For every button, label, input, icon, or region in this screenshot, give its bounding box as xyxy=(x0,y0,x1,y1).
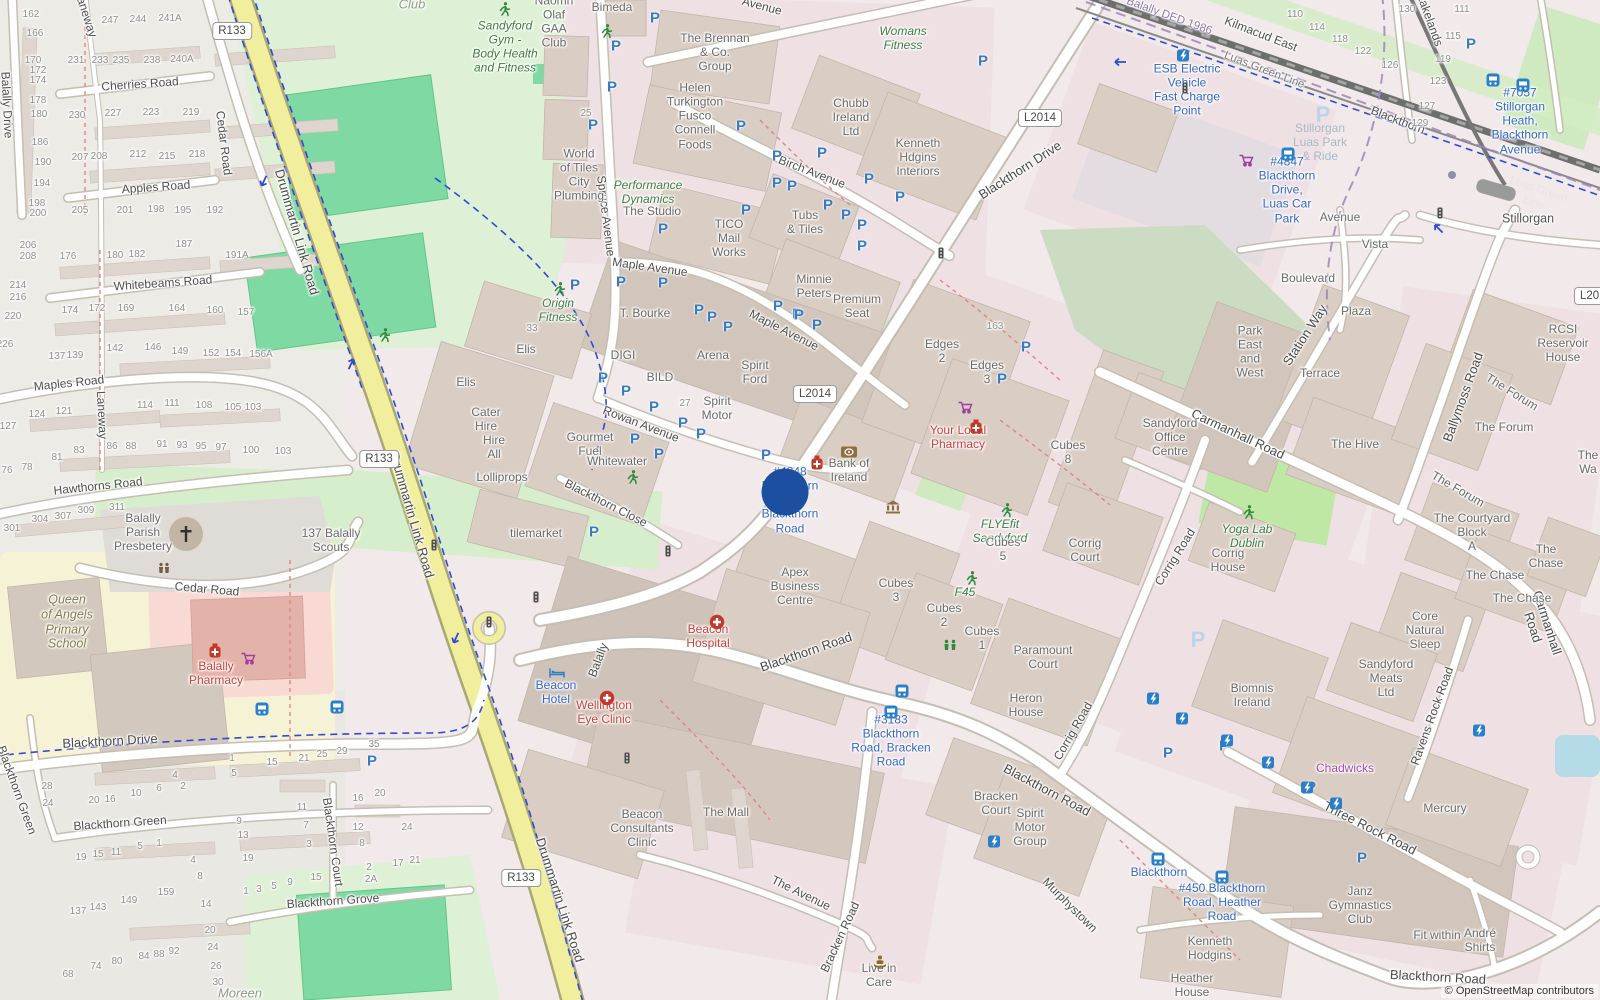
housenumber-198: 198 xyxy=(148,204,165,216)
map-label-arena: Arena xyxy=(697,348,729,362)
map-label-andr-shirts: André Shirts xyxy=(1464,926,1496,954)
housenumber-111: 111 xyxy=(164,398,179,410)
cart-icon xyxy=(1239,154,1254,167)
housenumber-160: 160 xyxy=(207,305,224,317)
map-label-ballymoss-road: Ballymoss Road xyxy=(1440,350,1487,444)
map-label-the-courtyard-block-a: The Courtyard Block A xyxy=(1434,511,1511,553)
housenumber-92: 92 xyxy=(168,946,179,958)
selected-stop-marker[interactable] xyxy=(762,469,809,516)
map-label-maple-avenue: Maple Avenue xyxy=(747,306,821,353)
parking-icon: P xyxy=(707,310,717,325)
bus-icon xyxy=(1216,871,1229,884)
parking-icon: P xyxy=(857,218,867,233)
map-label-blackthorn-drive: Blackthorn Drive xyxy=(62,731,158,751)
parking-icon: P xyxy=(367,754,377,769)
housenumber-241a: 241A xyxy=(158,13,181,25)
map-label-hire-all: Hire All xyxy=(483,433,505,461)
housenumber-198: 198 xyxy=(29,198,46,210)
housenumber-16: 16 xyxy=(104,794,115,806)
map-label-balally-drive: Balally Drive xyxy=(0,71,16,138)
ev-icon xyxy=(1330,797,1342,810)
housenumber-29: 29 xyxy=(336,746,347,758)
map-label-t-bourke: T. Bourke xyxy=(620,306,671,320)
housenumber-220: 220 xyxy=(5,311,22,323)
parking-icon: P xyxy=(658,276,668,291)
housenumber-180: 180 xyxy=(31,109,48,121)
housenumber-108: 108 xyxy=(196,400,213,412)
housenumber-12: 12 xyxy=(352,822,363,834)
map-label-world-of-tiles-city-plumbing: World of Tiles City Plumbing xyxy=(554,147,604,204)
runner-icon xyxy=(378,328,390,343)
housenumber-8: 8 xyxy=(359,838,365,850)
housenumber-9: 9 xyxy=(236,816,242,828)
housenumber-11: 11 xyxy=(297,802,307,814)
bus-icon xyxy=(1282,148,1295,161)
parking-icon: P xyxy=(654,447,664,462)
map-canvas[interactable]: Cherries RoadApples RoadWhitebeams RoadM… xyxy=(0,0,1600,1000)
map-label-rowan-avenue: Rowan Avenue xyxy=(601,403,681,445)
map-label-birch-avenue: Birch Avenue xyxy=(777,153,848,191)
map-label-the-avenue: The Avenue xyxy=(769,873,833,914)
housenumber-15: 15 xyxy=(266,757,277,769)
housenumber-166: 166 xyxy=(27,28,44,40)
map-label-plaza: Plaza xyxy=(1341,304,1371,318)
map-label-luas-green-line: Luas Green Line xyxy=(1222,49,1306,92)
parking-icon: P xyxy=(611,39,621,54)
map-label-the-chase: The Chase xyxy=(1519,542,1573,570)
parking-icon: P xyxy=(772,149,782,164)
map-label-3183-blackthorn-road-bracken-road: #3183 Blackthorn Road, Bracken Road xyxy=(851,713,930,770)
ev-icon xyxy=(1147,692,1159,705)
parking-icon: P xyxy=(792,307,802,322)
map-label-moreen: Moreen xyxy=(218,985,262,1000)
housenumber-227: 227 xyxy=(105,108,122,120)
housenumber-3: 3 xyxy=(256,884,262,896)
map-label-flyefit-sandyford: FLYEfit Sandyford xyxy=(973,517,1028,545)
housenumber-76: 76 xyxy=(1,465,12,477)
runner-icon xyxy=(600,24,612,39)
housenumber-223: 223 xyxy=(143,107,160,119)
housenumber-240a: 240A xyxy=(170,54,193,66)
care-icon xyxy=(873,954,887,968)
map-label-laneway: Laneway xyxy=(94,391,111,440)
parkingBig-icon: P xyxy=(1191,629,1206,651)
housenumber-127: 127 xyxy=(0,421,16,433)
map-label-blackthorn-court: Blackthorn Court xyxy=(320,797,346,887)
parking-icon: P xyxy=(696,427,706,442)
parkingBig-icon: P xyxy=(1316,104,1331,126)
parking-icon: P xyxy=(817,146,827,161)
map-label-three-rock-road: Three Rock Road xyxy=(1321,798,1419,858)
parking-icon: P xyxy=(761,448,771,463)
housenumber-169: 169 xyxy=(118,303,135,315)
housenumber-5: 5 xyxy=(231,768,237,780)
housenumber-127: 127 xyxy=(1419,101,1436,113)
housenumber-190: 190 xyxy=(35,157,52,169)
map-label-beacon-hospital: Beacon Hospital xyxy=(686,622,729,650)
housenumber-80: 80 xyxy=(111,956,122,968)
housenumber-176: 176 xyxy=(60,251,77,263)
traffic-icon xyxy=(666,546,671,557)
housenumber-81: 81 xyxy=(51,452,62,464)
runner-icon xyxy=(1242,505,1254,520)
map-label-the-mall: The Mall xyxy=(703,805,749,819)
housenumber-186: 186 xyxy=(32,137,49,149)
map-label-club: Club xyxy=(399,0,426,12)
map-label-elis: Elis xyxy=(456,375,475,389)
map-label-terrace: Terrace xyxy=(1300,366,1340,380)
map-label-tubs-tiles: Tubs & Tiles xyxy=(787,208,823,236)
map-label-digi: DIGI xyxy=(611,348,636,362)
map-label-the-brennan-co-group: The Brennan & Co. Group xyxy=(680,31,749,73)
map-label-kilmacud-east: Kilmacud East xyxy=(1223,14,1300,55)
map-label-naomh-olaf-gaa-club: Naomh Olaf GAA Club xyxy=(535,0,574,50)
map-label-your-local-pharmacy: Your Local Pharmacy xyxy=(930,423,986,451)
map-label-avenue: Avenue xyxy=(1320,210,1360,224)
housenumber-206: 206 xyxy=(20,240,37,252)
housenumber-119: 119 xyxy=(1435,54,1451,66)
runner-icon xyxy=(965,571,977,586)
parking-icon: P xyxy=(694,303,704,318)
church-icon xyxy=(180,526,193,542)
housenumber-68: 68 xyxy=(62,969,73,981)
parking-icon: P xyxy=(589,525,599,540)
hospital-icon xyxy=(710,615,725,630)
map-label-7057-stillorgan-heath-blackthorn-avenue: #7057 Stillorgan Heath, Blackthorn Avenu… xyxy=(1492,86,1549,157)
map-label-spirit-motor: Spirit Motor xyxy=(702,394,733,422)
map-label-cherries-road: Cherries Road xyxy=(101,74,179,94)
housenumber-137: 137 xyxy=(70,906,87,918)
traffic-icon xyxy=(1438,208,1443,219)
map-label-lolliprops: Lolliprops xyxy=(476,470,527,484)
housenumber-114: 114 xyxy=(137,400,153,412)
map-label-whitebeams-road: Whitebeams Road xyxy=(113,272,212,293)
housenumber-115: 115 xyxy=(1445,31,1461,43)
housenumber-172: 172 xyxy=(30,65,47,77)
housenumber-208: 208 xyxy=(91,151,108,163)
housenumber-20: 20 xyxy=(204,925,215,937)
housenumber-162: 162 xyxy=(23,9,40,21)
map-label-cubes-2: Cubes 2 xyxy=(927,601,962,629)
parking-icon: P xyxy=(1466,37,1476,52)
parking-icon: P xyxy=(570,278,580,293)
housenumber-149: 149 xyxy=(172,346,189,358)
parking-icon: P xyxy=(841,208,851,223)
map-label-wellington-eye-clinic: Wellington Eye Clinic xyxy=(576,698,632,726)
housenumber-15: 15 xyxy=(92,849,103,861)
housenumber-11: 11 xyxy=(111,847,121,859)
housenumber-84: 84 xyxy=(138,951,149,963)
map-label-elis: Elis xyxy=(516,342,535,356)
map-label-chadwicks: Chadwicks xyxy=(1316,761,1374,775)
housenumber-187: 187 xyxy=(176,239,193,251)
housenumber-178: 178 xyxy=(30,95,47,107)
ev-icon xyxy=(1221,734,1233,747)
housenumber-307: 307 xyxy=(55,511,72,523)
bus-icon xyxy=(256,703,269,716)
map-label-spirit-ford: Spirit Ford xyxy=(741,358,768,386)
parking-icon: P xyxy=(616,275,626,290)
parking-icon: P xyxy=(864,172,874,187)
road-ref-badge-l2014: L2014 xyxy=(1574,287,1600,305)
map-label-carmanhall-road: Carmanhall Road xyxy=(1189,406,1287,463)
ev-icon xyxy=(1176,712,1188,725)
scouts-icon xyxy=(157,563,171,574)
housenumber-194: 194 xyxy=(34,178,51,190)
housenumber-15: 15 xyxy=(310,872,321,884)
pharmacy-icon xyxy=(209,644,222,659)
housenumber-78: 78 xyxy=(21,462,32,474)
map-label-blackthorn-drive: Blackthorn Drive xyxy=(976,138,1064,203)
housenumber-86: 86 xyxy=(106,441,117,453)
map-label-blackthorn-grove: Blackthorn Grove xyxy=(286,891,379,912)
ev-icon xyxy=(1177,49,1189,62)
ev-icon xyxy=(1473,724,1485,737)
traffic-icon xyxy=(1183,83,1188,94)
bed-icon xyxy=(549,668,565,679)
housenumber-24: 24 xyxy=(42,798,53,810)
housenumber-88: 88 xyxy=(125,441,136,453)
traffic-icon xyxy=(534,592,539,603)
parking-icon: P xyxy=(607,80,617,95)
housenumber-212: 212 xyxy=(130,149,147,161)
parking-icon: P xyxy=(978,54,988,69)
housenumber-17: 17 xyxy=(392,858,403,870)
map-label-the-forum: The Forum xyxy=(1483,370,1540,413)
housenumber-5: 5 xyxy=(137,841,143,853)
parking-icon: P xyxy=(649,400,659,415)
housenumber-231: 231 xyxy=(68,55,85,67)
parking-icon: P xyxy=(630,432,640,447)
map-label-the-chase: The Chase xyxy=(1493,591,1552,605)
housenumber-172: 172 xyxy=(89,303,106,315)
map-label-performance-dynamics: Performance Dynamics xyxy=(614,178,683,206)
arrow-icon xyxy=(344,353,360,372)
parking-icon: P xyxy=(997,372,1007,387)
housenumber-192: 192 xyxy=(207,205,224,217)
bus-icon xyxy=(1487,74,1500,87)
housenumber-200: 200 xyxy=(30,208,47,220)
map-label-blackthorn: Blackthorn xyxy=(1369,103,1427,137)
housenumber-28: 28 xyxy=(41,781,52,793)
housenumber-149: 149 xyxy=(121,895,138,907)
map-label-corrig-court: Corrig Court xyxy=(1069,536,1102,564)
housenumber-27: 27 xyxy=(679,398,690,410)
map-label-station-way: Station Way xyxy=(1280,302,1331,369)
housenumber-88: 88 xyxy=(153,949,164,961)
housenumber-230: 230 xyxy=(69,110,86,122)
housenumber-309: 309 xyxy=(78,505,95,517)
housenumber-301: 301 xyxy=(4,523,21,535)
map-label-balally-pharmacy: Balally Pharmacy xyxy=(189,659,243,687)
map-label-spirit-motor-group: Spirit Motor Group xyxy=(1013,806,1046,848)
bus-icon xyxy=(331,701,344,714)
map-label-kenneth-hodgins: Kenneth Hodgins xyxy=(1188,934,1233,962)
pharmacy-icon xyxy=(970,420,983,435)
map-label-cater-hire: Cater Hire xyxy=(471,405,500,433)
housenumber-95: 95 xyxy=(195,441,206,453)
map-label-drummartin-link-road: Drummartin Link Road xyxy=(272,167,323,296)
map-label-blackthorn: Blackthorn xyxy=(1131,865,1188,879)
housenumber-24: 24 xyxy=(401,822,412,834)
map-label-stillorgan-luas-park-ride: Stillorgan Luas Park & Ride xyxy=(1293,121,1347,163)
parking-icon: P xyxy=(1163,746,1173,761)
map-label-corrig-road: Corrig Road xyxy=(1051,699,1096,762)
housenumber-152: 152 xyxy=(203,348,220,360)
map-label-tilemarket: tilemarket xyxy=(510,526,562,540)
housenumber-93: 93 xyxy=(176,440,187,452)
housenumber-4: 4 xyxy=(172,770,178,782)
runner-icon xyxy=(626,470,638,485)
map-label-the-hive: The Hive xyxy=(1331,437,1379,451)
housenumber-21: 21 xyxy=(298,753,309,765)
map-label-live-in-care: Live in Care xyxy=(862,961,897,989)
traffic-icon xyxy=(939,248,944,259)
bus-icon xyxy=(896,685,909,698)
housenumber-105: 105 xyxy=(225,402,242,414)
map-label-minnie-peters: Minnie Peters xyxy=(796,272,831,300)
housenumber-1: 1 xyxy=(156,838,162,850)
bus-icon xyxy=(1152,853,1165,866)
housenumber-157: 157 xyxy=(238,307,255,319)
housenumber-195: 195 xyxy=(175,205,192,217)
housenumber-174: 174 xyxy=(62,305,79,317)
map-label-450-blackthorn-road-heather-road: #450 Blackthorn Road, Heather Road xyxy=(1179,881,1266,923)
traffic-icon xyxy=(487,617,492,628)
parking-icon: P xyxy=(812,318,822,333)
map-label-the-chase: The Chase xyxy=(1466,568,1525,582)
map-label-biomnis-ireland: Biomnis Ireland xyxy=(1231,681,1274,709)
map-label-mercury: Mercury xyxy=(1423,801,1466,815)
map-label-esb-electric-vehicle-fast-charge-point: ESB Electric Vehicle Fast Charge Point xyxy=(1154,62,1221,119)
housenumber-238: 238 xyxy=(144,55,161,67)
arrow-icon xyxy=(1110,57,1126,67)
housenumber-143: 143 xyxy=(90,902,107,914)
road-ref-badge-l2014: L2014 xyxy=(1018,109,1062,127)
housenumber-6: 6 xyxy=(156,783,162,795)
housenumber-97: 97 xyxy=(215,442,226,454)
map-label-janz-gymnastics-club: Janz Gymnastics Club xyxy=(1329,884,1392,926)
map-label-whitewater: Whitewater xyxy=(587,454,647,468)
map-label-beacon-hotel: Beacon Hotel xyxy=(536,678,577,706)
map-label-ravens-rock-road: Ravens Rock Road xyxy=(1408,665,1457,767)
parking-icon: P xyxy=(823,198,833,213)
housenumber-182: 182 xyxy=(129,249,146,261)
map-label-cedar-road: Cedar Road xyxy=(213,110,235,176)
map-label-cubes-3: Cubes 3 xyxy=(879,576,914,604)
housenumber-2a: 2A xyxy=(365,874,377,886)
road-ref-badge-l2014: L2014 xyxy=(793,385,837,403)
map-label-apples-road: Apples Road xyxy=(121,178,191,197)
housenumber-159: 159 xyxy=(158,887,175,899)
road-ref-badge-r133: R133 xyxy=(359,450,399,468)
bus-icon xyxy=(885,706,898,719)
arrow-icon xyxy=(447,631,463,650)
map-label-queen-of-angels-primary-school: Queen of Angels Primary School xyxy=(41,593,93,652)
map-label-cedar-road: Cedar Road xyxy=(174,579,240,599)
map-label-boulevard: Boulevard xyxy=(1281,271,1335,285)
map-label-f45: F45 xyxy=(955,585,976,599)
bank-icon xyxy=(841,447,857,458)
map-label-bimeda: Bimeda xyxy=(592,0,633,14)
housenumber-10: 10 xyxy=(130,788,141,800)
map-label-murphystown: Murphystown xyxy=(1040,875,1100,935)
map-label-heather-house: Heather House xyxy=(1171,971,1214,999)
housenumber-110: 110 xyxy=(1287,9,1303,21)
map-label-balally: Balally xyxy=(585,641,611,679)
map-label-drummartin-link-road: Drummartin Link Road xyxy=(533,836,588,964)
housenumber-146: 146 xyxy=(145,342,162,354)
parking-icon: P xyxy=(857,239,867,254)
housenumber-235: 235 xyxy=(113,55,130,67)
map-label-yoga-lab-dublin: Yoga Lab Dublin xyxy=(1222,522,1273,550)
housenumber-114: 114 xyxy=(1309,22,1325,34)
parking-icon: P xyxy=(773,299,783,314)
parking-icon: P xyxy=(787,179,797,194)
housenumber-226: 226 xyxy=(0,339,13,351)
road-ref-badge-r133: R133 xyxy=(212,22,252,40)
housenumber-129: 129 xyxy=(1412,118,1429,130)
map-label-origin-fitness: Origin Fitness xyxy=(539,296,578,324)
museum-icon xyxy=(885,501,901,514)
housenumber-33: 33 xyxy=(526,323,537,335)
housenumber-219: 219 xyxy=(183,107,200,119)
housenumber-16: 16 xyxy=(352,793,363,805)
map-label-corrig-road: Corrig Road xyxy=(1152,526,1198,588)
map-label-gourmet-fuel: Gourmet Fuel xyxy=(567,430,614,458)
housenumber-233: 233 xyxy=(92,55,109,67)
map-label-the-wa: The Wa xyxy=(1578,448,1599,476)
map-label-kenneth-hdgins-interiors: Kenneth Hdgins Interiors xyxy=(896,136,941,178)
map-label-blackthorn-green: Blackthorn Green xyxy=(73,813,167,834)
housenumber-20: 20 xyxy=(374,788,385,800)
housenumber-111: 111 xyxy=(1454,4,1469,16)
parking-icon: P xyxy=(741,203,751,218)
housenumber-121: 121 xyxy=(56,406,73,418)
housenumber-103: 103 xyxy=(245,402,262,414)
map-label-blackthorn-road: Blackthorn Road xyxy=(1001,761,1093,820)
map-label-drummartin-link-road: Drummartin Link Road xyxy=(387,450,438,579)
ev-icon xyxy=(1301,781,1313,794)
map-label-premium-seat: Premium Seat xyxy=(833,292,881,320)
map-label-vista: Vista xyxy=(1362,237,1388,251)
housenumber-118: 118 xyxy=(1332,34,1348,46)
cart-icon xyxy=(958,401,973,414)
map-label-lakelands: Lakelands xyxy=(1414,0,1446,48)
housenumber-13: 13 xyxy=(237,830,248,842)
map-label-cubes-1: Cubes 1 xyxy=(965,624,1000,652)
housenumber-304: 304 xyxy=(32,514,49,526)
housenumber-201: 201 xyxy=(117,205,134,217)
housenumber-124: 124 xyxy=(29,409,46,421)
parking-icon: P xyxy=(723,320,733,335)
map-label-balally-parish-presbetery: Balally Parish Presbetery xyxy=(114,511,172,553)
housenumber-2: 2 xyxy=(366,862,372,874)
map-label-stillorgan: Stillorgan xyxy=(1502,212,1554,227)
housenumber-156a: 156A xyxy=(249,349,272,361)
map-label-rcsi-reservoir-house: RCSI Reservoir House xyxy=(1537,322,1588,364)
ev-icon xyxy=(1262,756,1274,769)
runner-icon xyxy=(498,2,510,17)
housenumber-218: 218 xyxy=(189,149,206,161)
map-label-edges-2: Edges 2 xyxy=(925,337,959,365)
housenumber-137: 137 xyxy=(49,351,66,363)
map-label-the-forum: The Forum xyxy=(1429,468,1487,510)
pharmacy-icon xyxy=(811,456,824,471)
parking-icon: P xyxy=(1219,739,1229,754)
housenumber-30: 30 xyxy=(212,977,223,989)
map-label-bank-of-ireland: Bank of Ireland xyxy=(829,456,870,484)
